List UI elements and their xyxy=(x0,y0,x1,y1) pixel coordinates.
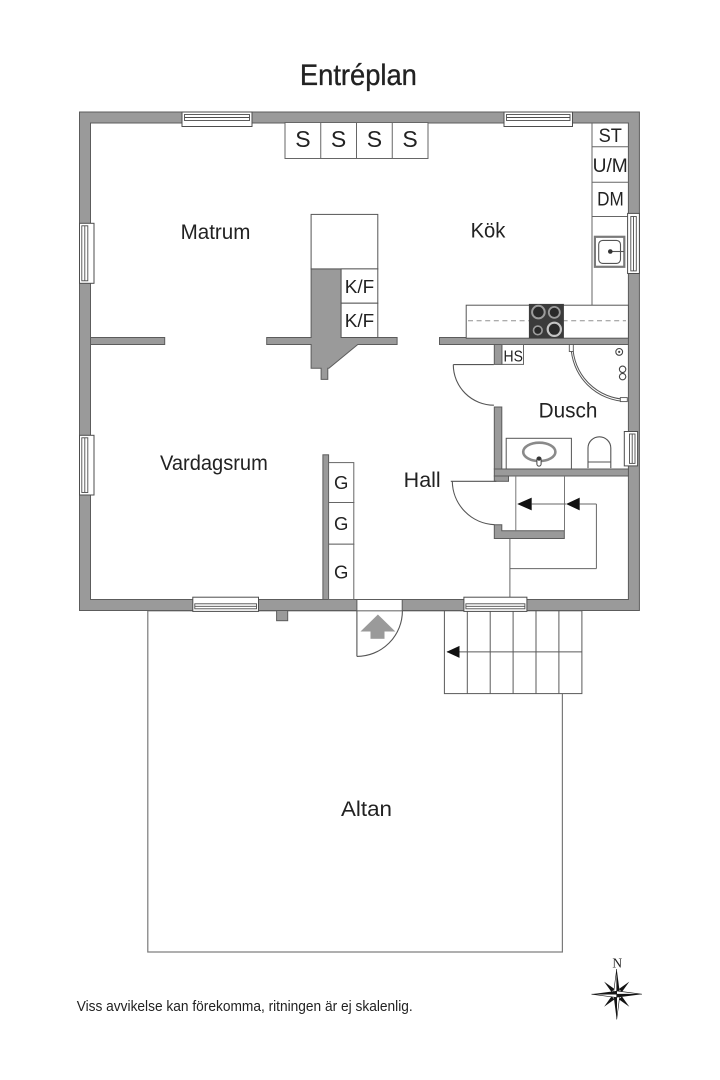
svg-text:S: S xyxy=(295,126,310,152)
svg-text:U/M: U/M xyxy=(593,155,628,177)
svg-text:Entréplan: Entréplan xyxy=(300,59,417,92)
svg-text:Altan: Altan xyxy=(341,798,392,821)
svg-text:G: G xyxy=(334,513,348,534)
svg-text:K/F: K/F xyxy=(345,276,374,297)
svg-text:Matrum: Matrum xyxy=(181,221,251,244)
svg-text:DM: DM xyxy=(597,189,624,211)
svg-text:S: S xyxy=(367,126,382,152)
svg-text:Dusch: Dusch xyxy=(539,400,598,423)
svg-text:Kök: Kök xyxy=(471,220,506,243)
svg-text:Vardagsrum: Vardagsrum xyxy=(160,452,268,475)
svg-text:ST: ST xyxy=(599,125,622,147)
svg-text:HS: HS xyxy=(504,348,523,365)
svg-text:K/F: K/F xyxy=(345,310,374,331)
svg-text:G: G xyxy=(334,472,348,493)
svg-text:S: S xyxy=(402,126,417,152)
svg-text:Viss avvikelse kan förekomma,: Viss avvikelse kan förekomma, ritningen … xyxy=(77,998,413,1015)
svg-text:G: G xyxy=(334,562,348,583)
svg-text:N: N xyxy=(612,955,622,970)
svg-text:Hall: Hall xyxy=(404,469,441,492)
svg-text:S: S xyxy=(331,126,346,152)
